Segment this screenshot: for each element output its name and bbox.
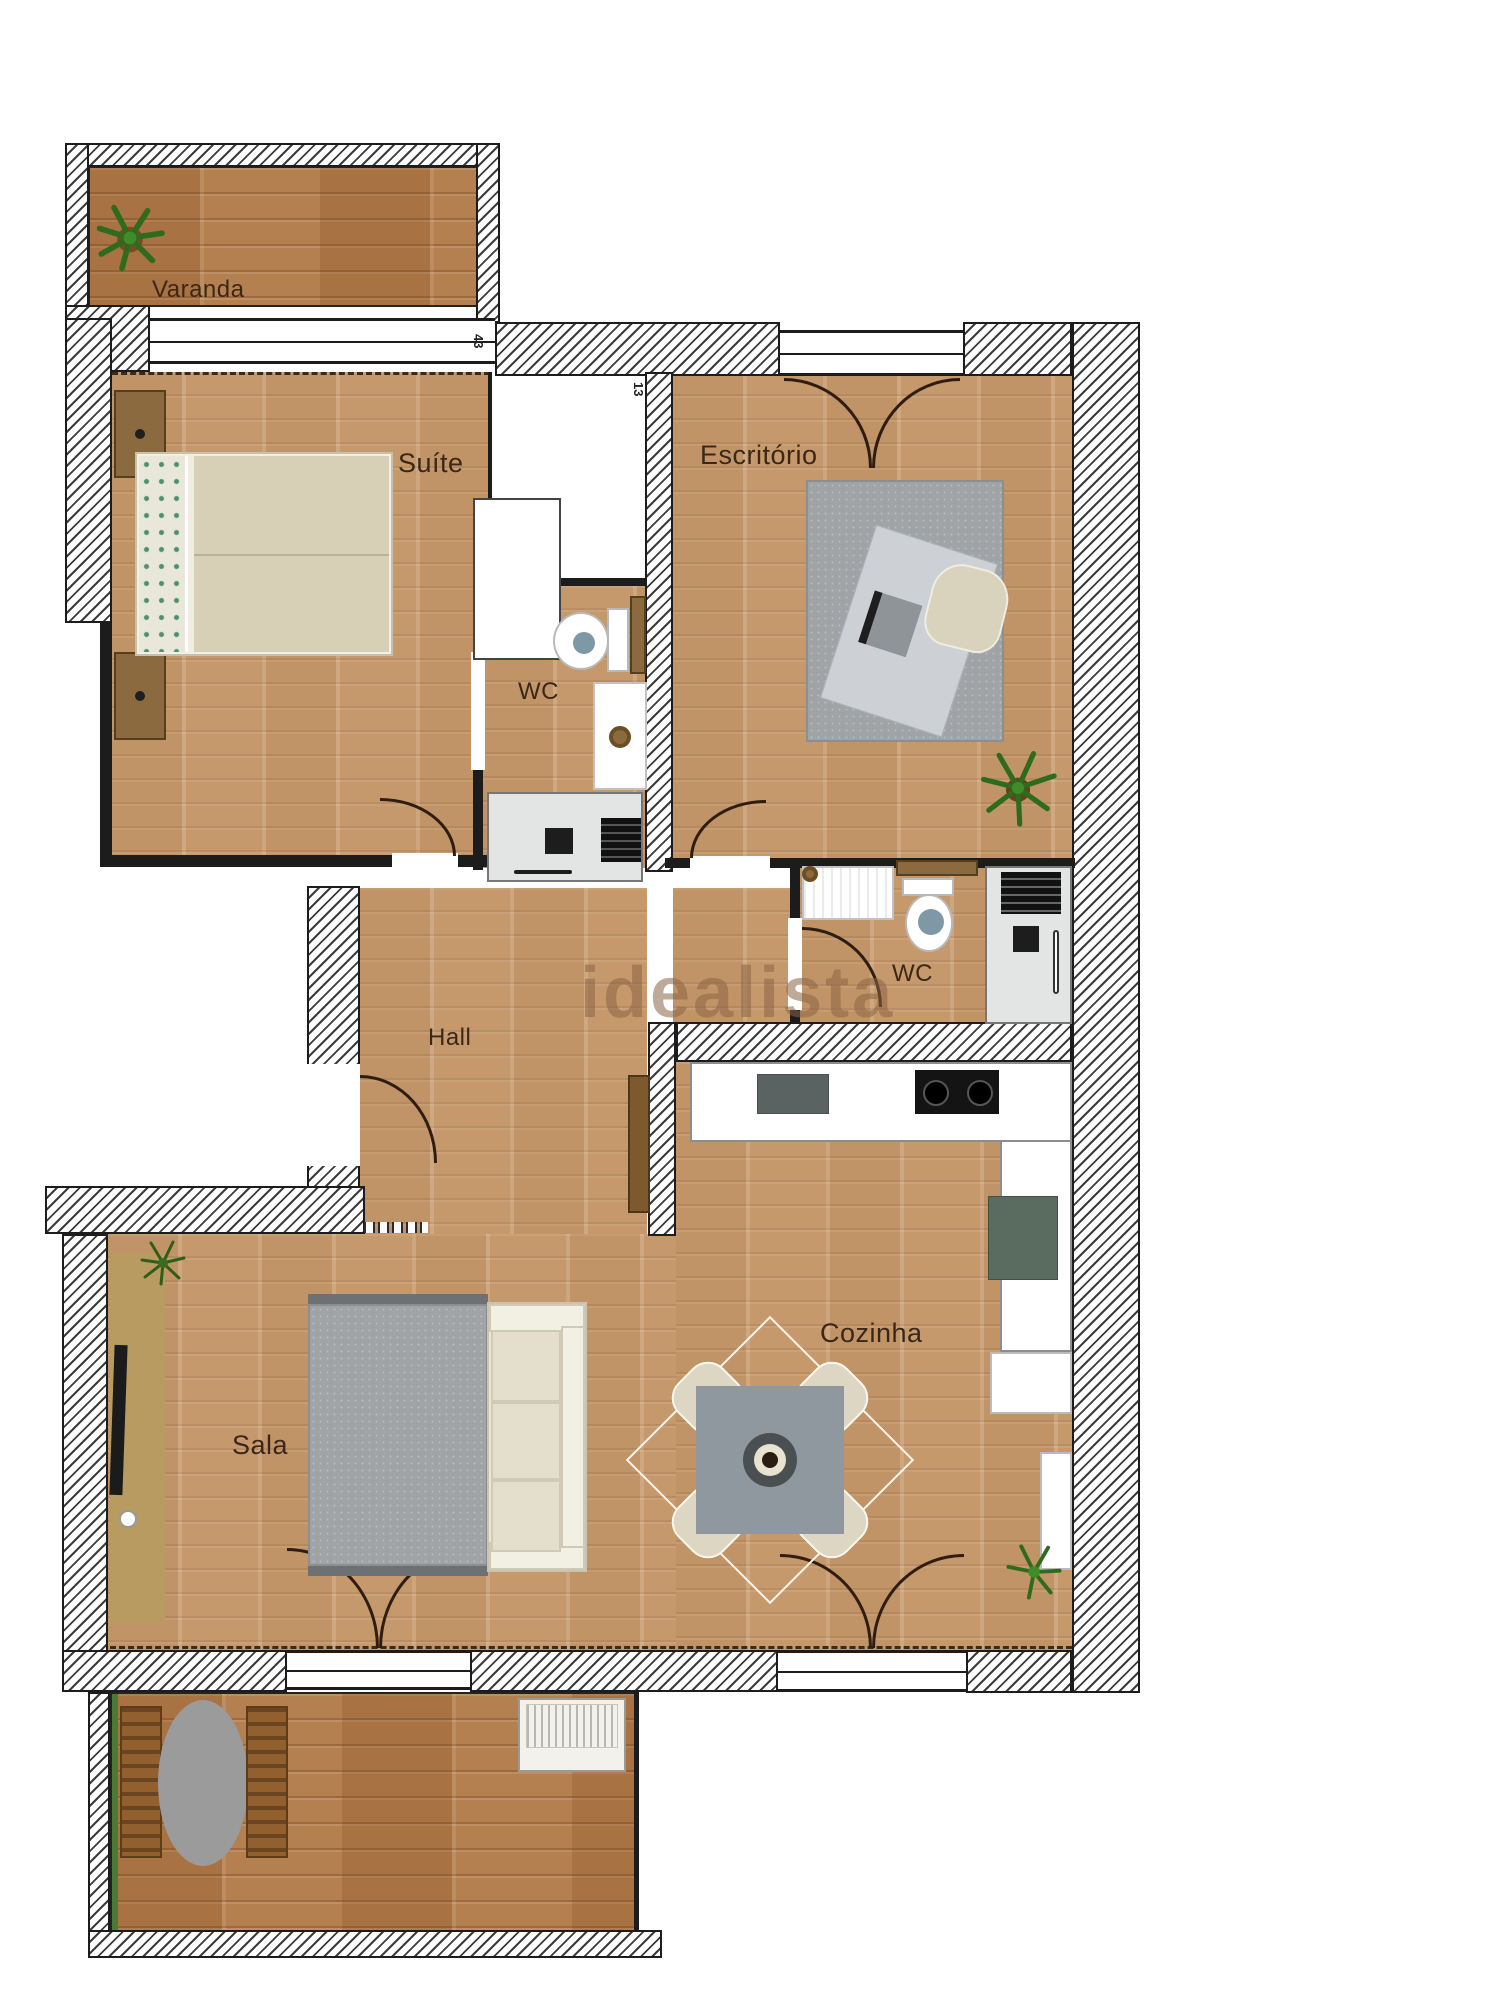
escritorio-door-opening bbox=[780, 330, 963, 376]
sofa-back bbox=[561, 1326, 585, 1548]
ac-unit bbox=[518, 1698, 626, 1772]
room-label-suite: Suíte bbox=[398, 448, 464, 479]
wall bbox=[634, 1692, 639, 1932]
deck-chair bbox=[246, 1706, 288, 1858]
shower-rail-icon bbox=[514, 870, 572, 874]
lamp-icon bbox=[135, 429, 145, 439]
kitchen-sink bbox=[757, 1074, 829, 1114]
shower-fixture-icon bbox=[545, 828, 573, 854]
kitchen-counter bbox=[690, 1062, 1072, 1142]
escritorio-door-gap bbox=[690, 856, 770, 870]
toilet-seat bbox=[573, 632, 595, 654]
wc-suite-door-gap bbox=[471, 652, 485, 770]
wall bbox=[65, 143, 89, 323]
wall-right-exterior bbox=[1072, 322, 1140, 1693]
wall bbox=[470, 1650, 778, 1692]
deck-chair bbox=[120, 1706, 162, 1858]
bathroom-shelf bbox=[630, 596, 646, 674]
living-rug bbox=[308, 1304, 488, 1566]
room-hall-floor bbox=[360, 888, 647, 1234]
bed-pillows bbox=[139, 456, 188, 652]
dimension-annotation: 43 bbox=[471, 334, 486, 348]
laptop-icon bbox=[858, 590, 922, 657]
open-door-panel bbox=[628, 1075, 650, 1213]
wall bbox=[476, 143, 500, 323]
room-label-hall: Hall bbox=[428, 1024, 471, 1052]
faucet-icon bbox=[802, 866, 818, 882]
wall bbox=[65, 143, 500, 167]
threshold-dots bbox=[364, 1222, 428, 1233]
sofa-cushion bbox=[491, 1330, 561, 1402]
bed-duvet bbox=[189, 456, 389, 652]
shower-fixture-icon bbox=[1013, 926, 1039, 952]
toilet-seat bbox=[918, 909, 944, 935]
dining-set bbox=[658, 1348, 882, 1572]
sofa bbox=[487, 1302, 587, 1572]
sink-basin-icon bbox=[609, 726, 631, 748]
shower bbox=[985, 866, 1072, 1024]
nightstand bbox=[114, 652, 166, 740]
shower-door-handle-icon bbox=[1053, 930, 1059, 994]
plant-icon bbox=[138, 1238, 188, 1288]
wall-kitchen-divider bbox=[648, 1022, 676, 1236]
cooktop-icon bbox=[915, 1070, 999, 1114]
room-label-wc-suite: WC bbox=[518, 678, 559, 706]
washer-icon bbox=[601, 818, 641, 862]
wall bbox=[100, 855, 392, 867]
washer-icon bbox=[1001, 872, 1061, 914]
wall bbox=[88, 1692, 110, 1932]
room-label-cozinha: Cozinha bbox=[820, 1318, 923, 1349]
room-label-varanda: Varanda bbox=[152, 276, 244, 304]
plant-icon bbox=[90, 198, 170, 278]
sofa-cushion bbox=[491, 1480, 561, 1552]
wall bbox=[62, 1650, 287, 1692]
toilet-icon bbox=[553, 612, 609, 670]
sala-door-opening bbox=[287, 1650, 470, 1690]
kitchen-cabinet bbox=[990, 1352, 1072, 1414]
room-label-wc-service: WC bbox=[892, 960, 933, 988]
table-centerpiece-dot bbox=[762, 1452, 778, 1468]
shower bbox=[487, 792, 643, 882]
floor-plan: Varanda Suíte Escritório WC WC Hall Sala… bbox=[0, 0, 1500, 2008]
wall bbox=[645, 372, 673, 872]
wall bbox=[100, 623, 112, 863]
bathroom-sink bbox=[802, 866, 894, 920]
sofa-cushion bbox=[491, 1402, 561, 1480]
bathroom-shelf bbox=[896, 860, 978, 876]
room-label-escritorio: Escritório bbox=[700, 440, 818, 471]
wall bbox=[495, 322, 780, 376]
toilet-icon bbox=[905, 894, 953, 952]
bed bbox=[135, 452, 393, 656]
cozinha-door-opening bbox=[778, 1650, 966, 1692]
suite-window-dash bbox=[112, 372, 490, 375]
wall bbox=[963, 322, 1072, 376]
bathroom-sink bbox=[593, 682, 647, 790]
lamp-icon bbox=[135, 691, 145, 701]
room-label-sala: Sala bbox=[232, 1430, 288, 1461]
wall bbox=[65, 318, 112, 623]
wall bbox=[966, 1650, 1072, 1693]
wall bbox=[62, 1234, 108, 1658]
rug-fringe bbox=[308, 1566, 488, 1576]
balcony-hedge bbox=[112, 1694, 118, 1930]
wall bbox=[88, 1930, 662, 1958]
hall-door-gap bbox=[307, 1064, 360, 1166]
plant-icon bbox=[975, 745, 1061, 831]
toilet-tank bbox=[607, 608, 629, 672]
deck-table bbox=[158, 1700, 248, 1866]
wall bbox=[45, 1186, 365, 1234]
dishwasher bbox=[988, 1196, 1058, 1280]
plant-icon bbox=[1002, 1540, 1066, 1604]
ac-vents-icon bbox=[526, 1704, 618, 1748]
rug-fringe bbox=[308, 1294, 488, 1304]
varanda-window bbox=[150, 318, 495, 364]
idealista-watermark: idealista bbox=[580, 952, 895, 1034]
suite-closet bbox=[473, 498, 561, 660]
dimension-annotation: 13 bbox=[631, 382, 646, 396]
decor-lamp-icon bbox=[119, 1510, 137, 1528]
